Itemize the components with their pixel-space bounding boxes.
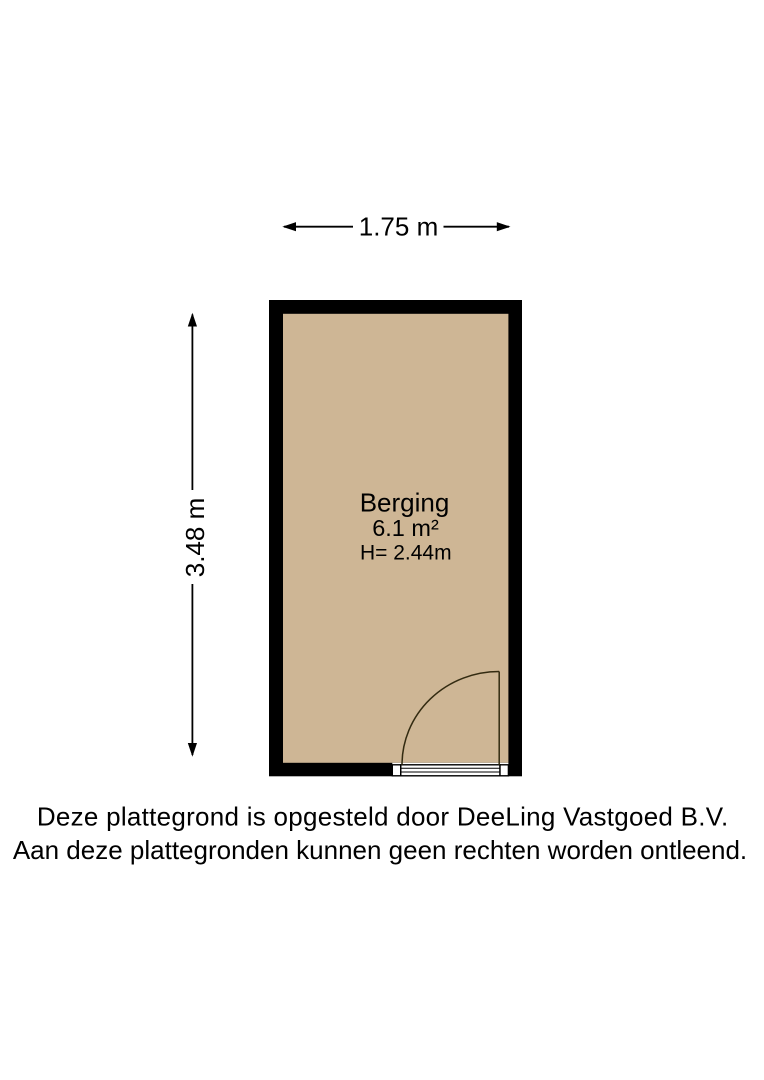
svg-text:6.1 m²: 6.1 m² xyxy=(372,515,439,541)
svg-text:Deze plattegrond is opgesteld: Deze plattegrond is opgesteld door DeeLi… xyxy=(37,801,729,831)
svg-text:Berging: Berging xyxy=(360,488,450,518)
svg-text:3.48 m: 3.48 m xyxy=(180,498,210,578)
svg-text:Aan deze plattegronden kunnen: Aan deze plattegronden kunnen geen recht… xyxy=(13,835,747,865)
svg-text:1.75 m: 1.75 m xyxy=(359,212,439,242)
svg-text:H= 2.44m: H= 2.44m xyxy=(360,541,452,564)
